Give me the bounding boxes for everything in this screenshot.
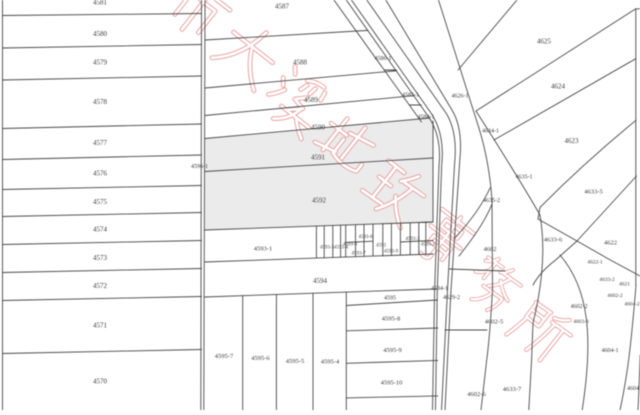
svg-text:4593-8: 4593-8 [343, 242, 358, 247]
svg-text:4604-1: 4604-1 [602, 348, 619, 354]
svg-text:4604-2: 4604-2 [624, 302, 640, 308]
svg-text:4596-1: 4596-1 [191, 164, 208, 170]
svg-text:4633-7: 4633-7 [503, 386, 522, 393]
svg-text:4575: 4575 [93, 198, 108, 206]
svg-text:4571: 4571 [93, 322, 108, 330]
svg-text:4624: 4624 [551, 83, 566, 91]
svg-text:4581: 4581 [93, 0, 108, 7]
svg-text:4574: 4574 [93, 226, 108, 234]
svg-text:4595-5: 4595-5 [286, 358, 304, 365]
svg-text:4593: 4593 [376, 243, 387, 248]
svg-text:4593-5: 4593-5 [320, 245, 335, 250]
svg-text:4585-1: 4585-1 [402, 93, 419, 99]
svg-text:4603-6: 4603-6 [573, 319, 589, 325]
svg-text:4593-7: 4593-7 [351, 251, 366, 256]
svg-text:4602: 4602 [484, 246, 497, 253]
svg-text:4577: 4577 [93, 139, 108, 147]
svg-text:4602-2: 4602-2 [571, 304, 588, 310]
svg-text:4604: 4604 [627, 386, 639, 392]
svg-text:4594: 4594 [313, 277, 328, 285]
svg-text:4593-9: 4593-9 [384, 249, 399, 254]
svg-text:4584-1: 4584-1 [418, 115, 435, 121]
svg-text:4576: 4576 [93, 170, 108, 178]
svg-text:4572: 4572 [93, 282, 108, 290]
svg-text:4578: 4578 [93, 98, 108, 106]
svg-text:4629-2: 4629-2 [443, 295, 460, 301]
svg-text:4589: 4589 [304, 96, 319, 104]
svg-text:4595-9: 4595-9 [383, 347, 401, 354]
svg-text:4579: 4579 [93, 59, 108, 67]
svg-text:4635-2: 4635-2 [483, 198, 500, 204]
svg-text:4635-1: 4635-1 [516, 175, 533, 181]
svg-text:4602-6: 4602-6 [467, 391, 486, 398]
svg-text:4593-1: 4593-1 [254, 245, 272, 252]
svg-text:4591: 4591 [311, 154, 326, 162]
svg-text:4590: 4590 [311, 124, 326, 132]
svg-text:4593-3: 4593-3 [405, 237, 420, 242]
svg-text:4595-10: 4595-10 [381, 379, 403, 386]
svg-text:4595: 4595 [384, 296, 396, 302]
svg-text:4595-6: 4595-6 [251, 355, 270, 362]
svg-text:4588: 4588 [293, 59, 308, 67]
svg-text:4593-6: 4593-6 [358, 235, 373, 240]
svg-text:4570: 4570 [93, 378, 108, 386]
svg-text:4573: 4573 [93, 254, 108, 262]
svg-text:4633-5: 4633-5 [584, 188, 602, 195]
svg-text:4633-2: 4633-2 [599, 277, 615, 283]
svg-text:4622-1: 4622-1 [587, 260, 603, 266]
svg-text:4633-6: 4633-6 [544, 236, 563, 243]
svg-text:4602-5: 4602-5 [485, 318, 503, 325]
svg-text:4594-1: 4594-1 [431, 286, 448, 292]
svg-text:4593-2: 4593-2 [421, 242, 436, 247]
svg-text:4587: 4587 [275, 3, 290, 11]
svg-text:4595-4: 4595-4 [321, 358, 340, 365]
svg-text:4595-8: 4595-8 [382, 315, 400, 322]
svg-text:4621: 4621 [619, 282, 630, 288]
svg-text:4602-2: 4602-2 [607, 293, 623, 299]
svg-text:4625: 4625 [537, 38, 552, 46]
svg-text:4592: 4592 [312, 197, 327, 205]
svg-text:4623: 4623 [565, 137, 580, 145]
svg-text:4595-7: 4595-7 [215, 353, 234, 360]
svg-text:4586-1: 4586-1 [375, 56, 392, 62]
svg-text:4580: 4580 [93, 30, 108, 38]
svg-text:4626-1: 4626-1 [452, 94, 469, 100]
svg-text:4622: 4622 [604, 239, 617, 246]
svg-text:4634-1: 4634-1 [482, 129, 499, 135]
